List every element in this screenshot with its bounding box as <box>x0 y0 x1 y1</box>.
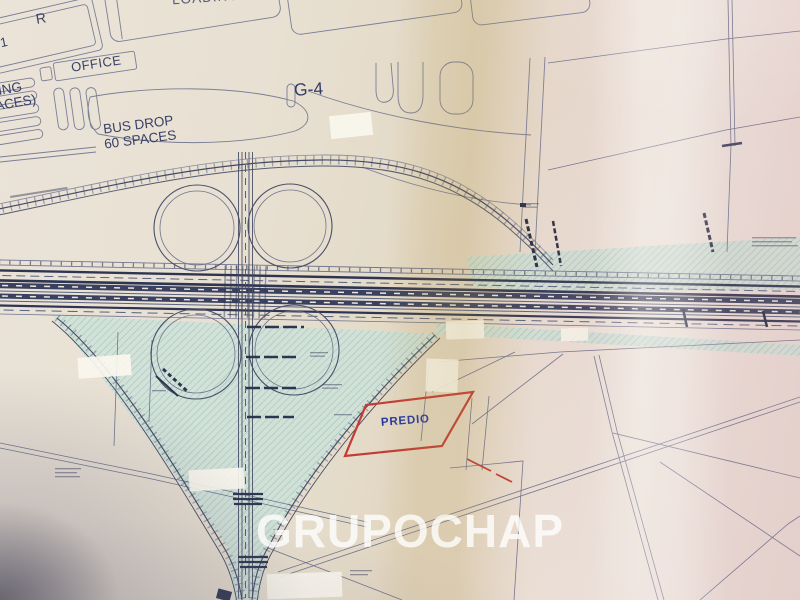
north-ramp <box>0 155 553 271</box>
g4-label: G-4 <box>294 79 324 100</box>
predio-parcel-outline <box>345 392 512 482</box>
watermark: GRUPOCHAP <box>256 504 564 558</box>
parking-fingers-middle <box>53 83 101 134</box>
site-plan-photo: LOADING R -1 OFFICE ING ACES) BUS DROP 6… <box>0 0 800 600</box>
